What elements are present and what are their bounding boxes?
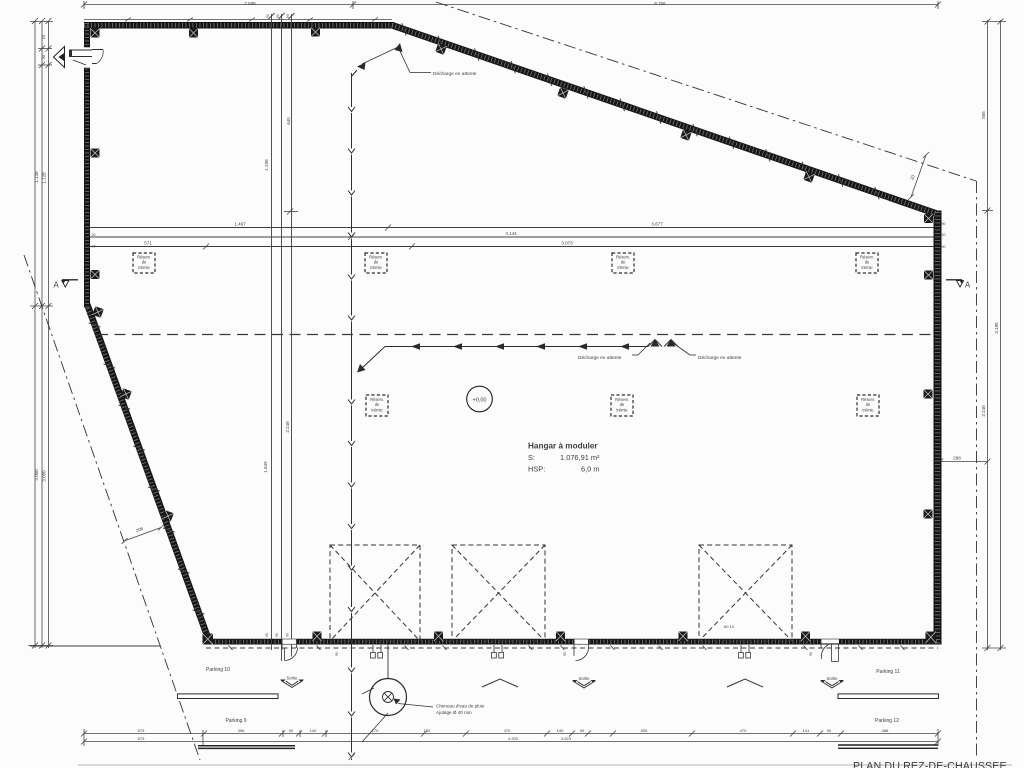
- svg-text:1.076,91 m²: 1.076,91 m²: [560, 453, 600, 462]
- svg-text:+0,00: +0,00: [473, 398, 487, 404]
- svg-text:1.138: 1.138: [34, 171, 39, 183]
- svg-text:de: de: [865, 260, 870, 265]
- svg-text:8.756: 8.756: [654, 1, 666, 6]
- svg-text:90: 90: [809, 652, 813, 656]
- svg-text:trémie: trémie: [371, 408, 383, 413]
- svg-text:trémie: trémie: [617, 265, 629, 270]
- svg-text:7.588: 7.588: [244, 1, 256, 6]
- svg-text:Sortie: Sortie: [827, 676, 839, 681]
- svg-text:470: 470: [740, 728, 747, 733]
- svg-text:3.073: 3.073: [561, 241, 573, 246]
- svg-text:Parking 9: Parking 9: [225, 718, 246, 724]
- svg-text:133: 133: [424, 728, 431, 733]
- svg-text:90: 90: [289, 728, 294, 733]
- svg-text:90: 90: [942, 245, 946, 249]
- svg-text:90: 90: [92, 245, 96, 249]
- svg-text:90: 90: [265, 633, 269, 637]
- svg-text:20: 20: [942, 233, 946, 237]
- svg-text:505: 505: [981, 111, 986, 119]
- svg-text:Ajutage Ø 40 mm: Ajutage Ø 40 mm: [436, 710, 472, 715]
- svg-text:trémie: trémie: [616, 408, 628, 413]
- svg-text:Décharge en attente: Décharge en attente: [578, 355, 622, 361]
- svg-text:2.140: 2.140: [981, 405, 986, 417]
- svg-text:90: 90: [286, 633, 290, 637]
- svg-text:60 10: 60 10: [724, 624, 735, 629]
- svg-text:de: de: [621, 260, 626, 265]
- svg-text:1.128: 1.128: [42, 172, 47, 184]
- svg-text:90: 90: [286, 14, 290, 18]
- svg-text:de: de: [620, 402, 625, 407]
- svg-text:90: 90: [266, 14, 270, 18]
- svg-text:Hangar à moduler: Hangar à moduler: [528, 442, 598, 451]
- svg-text:90: 90: [276, 14, 280, 18]
- svg-text:A: A: [54, 281, 60, 290]
- svg-text:298: 298: [953, 456, 961, 461]
- svg-text:Décharge en attente: Décharge en attente: [433, 71, 477, 77]
- svg-text:de: de: [375, 402, 380, 407]
- svg-text:1.467: 1.467: [234, 222, 246, 227]
- svg-text:579: 579: [138, 736, 145, 741]
- svg-text:PLAN DU REZ-DE-CHAUSSEE: PLAN DU REZ-DE-CHAUSSEE: [853, 761, 1007, 768]
- svg-text:2.148: 2.148: [285, 421, 290, 433]
- svg-text:90: 90: [275, 633, 279, 637]
- svg-text:141: 141: [803, 728, 810, 733]
- svg-text:6,0 m: 6,0 m: [581, 465, 599, 474]
- svg-text:Parking 12: Parking 12: [875, 718, 899, 724]
- svg-text:571: 571: [144, 241, 152, 246]
- svg-text:140: 140: [310, 728, 317, 733]
- svg-text:Décharge en attente: Décharge en attente: [698, 355, 742, 361]
- svg-text:Sortie: Sortie: [287, 676, 299, 681]
- svg-text:3.050: 3.050: [42, 470, 47, 482]
- svg-text:506: 506: [641, 728, 648, 733]
- svg-text:trémie: trémie: [862, 408, 874, 413]
- svg-text:Sortie: Sortie: [579, 676, 591, 681]
- svg-text:396: 396: [238, 728, 245, 733]
- svg-text:3.623: 3.623: [561, 736, 572, 741]
- svg-text:50: 50: [41, 34, 46, 39]
- svg-text:de: de: [142, 260, 147, 265]
- svg-text:645: 645: [286, 117, 291, 125]
- svg-text:trémie: trémie: [138, 265, 150, 270]
- svg-text:3.060: 3.060: [34, 469, 39, 481]
- svg-text:HSP:: HSP:: [528, 465, 545, 474]
- svg-text:Cheneau d'eau de pluie: Cheneau d'eau de pluie: [436, 704, 485, 709]
- svg-text:90: 90: [563, 652, 567, 656]
- svg-text:90: 90: [335, 652, 339, 656]
- svg-text:S:: S:: [528, 453, 535, 462]
- svg-text:90: 90: [580, 728, 585, 733]
- svg-text:de: de: [866, 402, 871, 407]
- svg-text:90: 90: [827, 728, 832, 733]
- svg-text:1.649: 1.649: [263, 461, 268, 473]
- svg-text:470: 470: [504, 728, 511, 733]
- svg-text:de: de: [374, 260, 379, 265]
- svg-text:488: 488: [882, 728, 889, 733]
- svg-text:1.198: 1.198: [264, 159, 269, 171]
- svg-text:579: 579: [138, 728, 145, 733]
- svg-text:4.144: 4.144: [505, 231, 517, 236]
- svg-text:Parking 10: Parking 10: [206, 667, 230, 673]
- svg-text:140: 140: [557, 728, 564, 733]
- svg-text:20: 20: [92, 233, 96, 237]
- svg-text:Parking 11: Parking 11: [876, 669, 900, 675]
- svg-text:trémie: trémie: [861, 265, 873, 270]
- svg-text:90: 90: [41, 54, 46, 59]
- svg-text:90: 90: [942, 222, 946, 226]
- svg-text:3.677: 3.677: [651, 222, 663, 227]
- svg-text:4.200: 4.200: [508, 736, 519, 741]
- svg-text:trémie: trémie: [370, 265, 382, 270]
- svg-text:A: A: [965, 281, 971, 290]
- svg-text:3.185: 3.185: [994, 322, 999, 334]
